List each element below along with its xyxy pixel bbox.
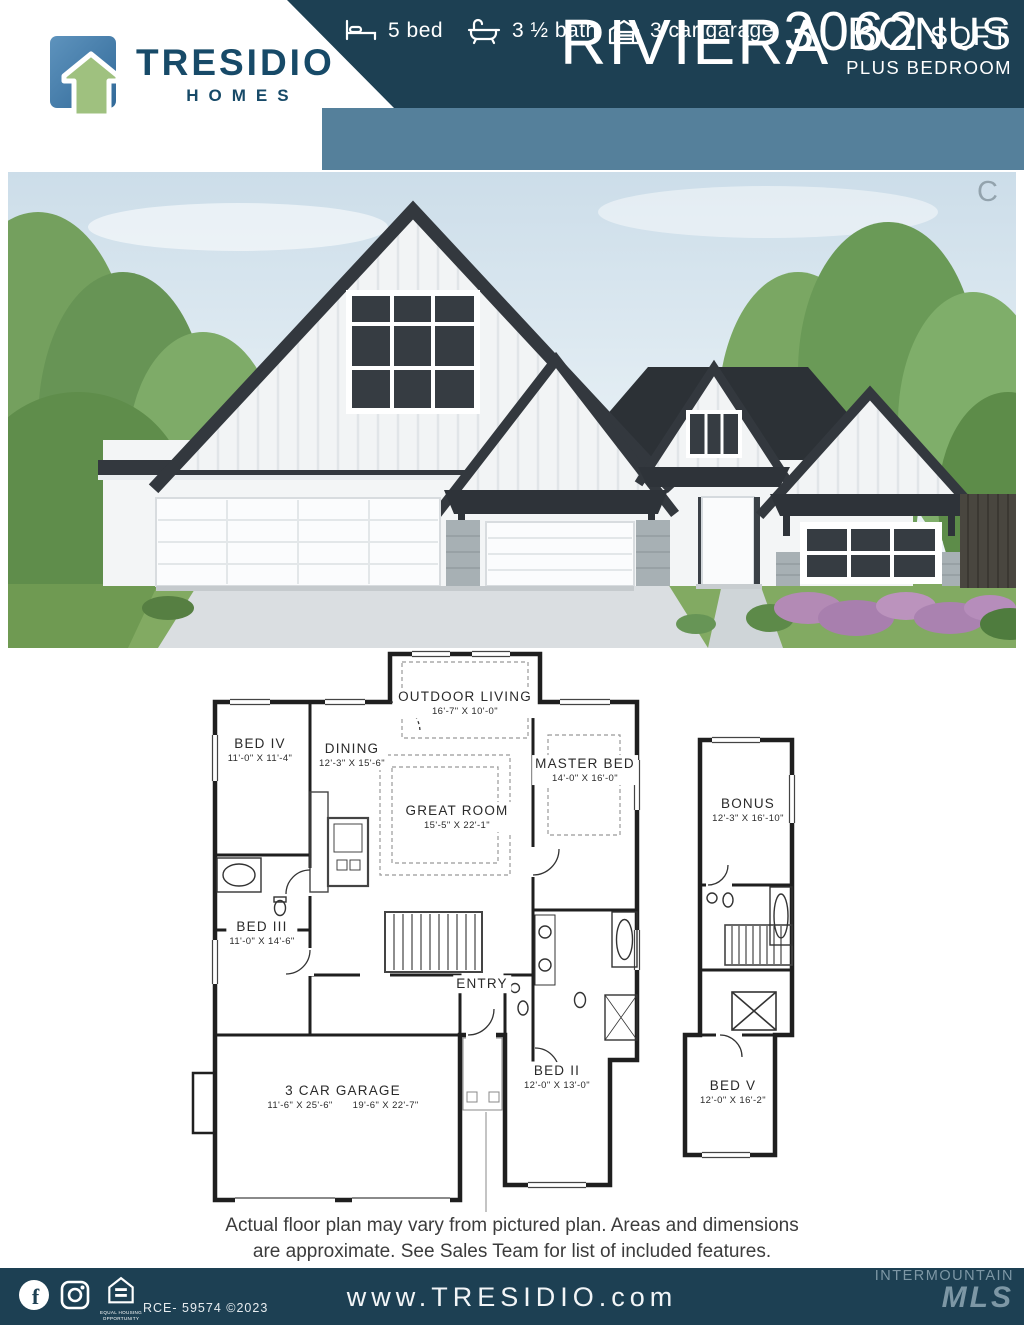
header-steel-band [322,108,1024,170]
driveway [158,584,708,648]
room-label-entry: ENTRY [453,975,511,993]
room-label-outdoor-living: OUTDOOR LIVING 16'-7" X 10'-0" [395,688,535,718]
plan-variant: BONUS PLUS BEDROOM [846,14,1012,79]
svg-text:f: f [32,1284,40,1309]
facebook-icon[interactable]: f [18,1279,50,1311]
equal-housing-text-1: EQUAL HOUSING [99,1310,143,1316]
room-label-bonus: BONUS 12'-3" X 16'-10" [709,795,787,825]
house-rendering: C [8,172,1016,648]
feature-beds: 5 bed [343,0,443,62]
instagram-icon[interactable] [60,1280,90,1310]
logo-text: TRESIDIO HOMES [136,44,335,106]
feature-beds-label: 5 bed [388,19,443,43]
website-url[interactable]: www.TRESIDIO.com [347,1282,678,1313]
tresidio-house-logo-icon [46,34,124,118]
flyer-page: TRESIDIO HOMES RIVIERA BONUS PLUS BEDROO… [0,0,1024,1325]
room-label-bed-iii: BED III 11'-0" X 14'-6" [226,918,297,948]
floorplan: OUTDOOR LIVING 16'-7" X 10'-0" BED IV 11… [180,640,835,1215]
license-number: RCE- 59574 ©2023 [143,1301,268,1315]
bath-icon [465,17,503,45]
house-scene [8,172,1016,648]
equal-housing-text-2: OPPORTUNITY [99,1316,143,1322]
plan-variant-sub: PLUS BEDROOM [846,57,1012,79]
room-label-garage: 3 CAR GARAGE 11'-6" X 25'-6"19'-6" X 22'… [264,1082,421,1112]
room-label-bed-iv: BED IV 11'-0" X 11'-4" [225,735,296,765]
tresidio-logo: TRESIDIO HOMES [46,34,335,118]
mls-logo: INTERMOUNTAIN MLS [875,1270,1014,1312]
footer: f EQUAL HOUSING OPPORTUNITY RCE- 59574 ©… [0,1268,1024,1325]
disclaimer: Actual floor plan may vary from pictured… [0,1213,1024,1265]
bed-icon [343,18,379,44]
room-label-bed-v: BED V 12'-0" X 16'-2" [697,1077,769,1107]
equal-housing-block: EQUAL HOUSING OPPORTUNITY [99,1274,143,1321]
plan-variant-name: BONUS [847,14,1012,55]
room-label-master-bed: MASTER BED 14'-0" X 16'-0" [532,755,638,785]
mls-logo-bottom: MLS [875,1284,1014,1313]
disclaimer-line2: are approximate. See Sales Team for list… [0,1239,1024,1265]
equal-housing-icon [104,1274,138,1304]
logo-brand: TRESIDIO [136,44,335,81]
room-label-dining: DINING 12'-3" X 15'-6" [316,740,388,770]
room-label-bed-ii: BED II 12'-0" X 13'-0" [521,1062,593,1092]
photo-watermark: C [977,176,998,209]
disclaimer-line1: Actual floor plan may vary from pictured… [0,1213,1024,1239]
logo-word: HOMES [136,86,335,106]
room-label-great-room: GREAT ROOM 15'-5" X 22'-1" [402,802,511,832]
plan-name: RIVIERA [560,12,830,73]
plan-title: RIVIERA BONUS PLUS BEDROOM [560,12,1012,79]
